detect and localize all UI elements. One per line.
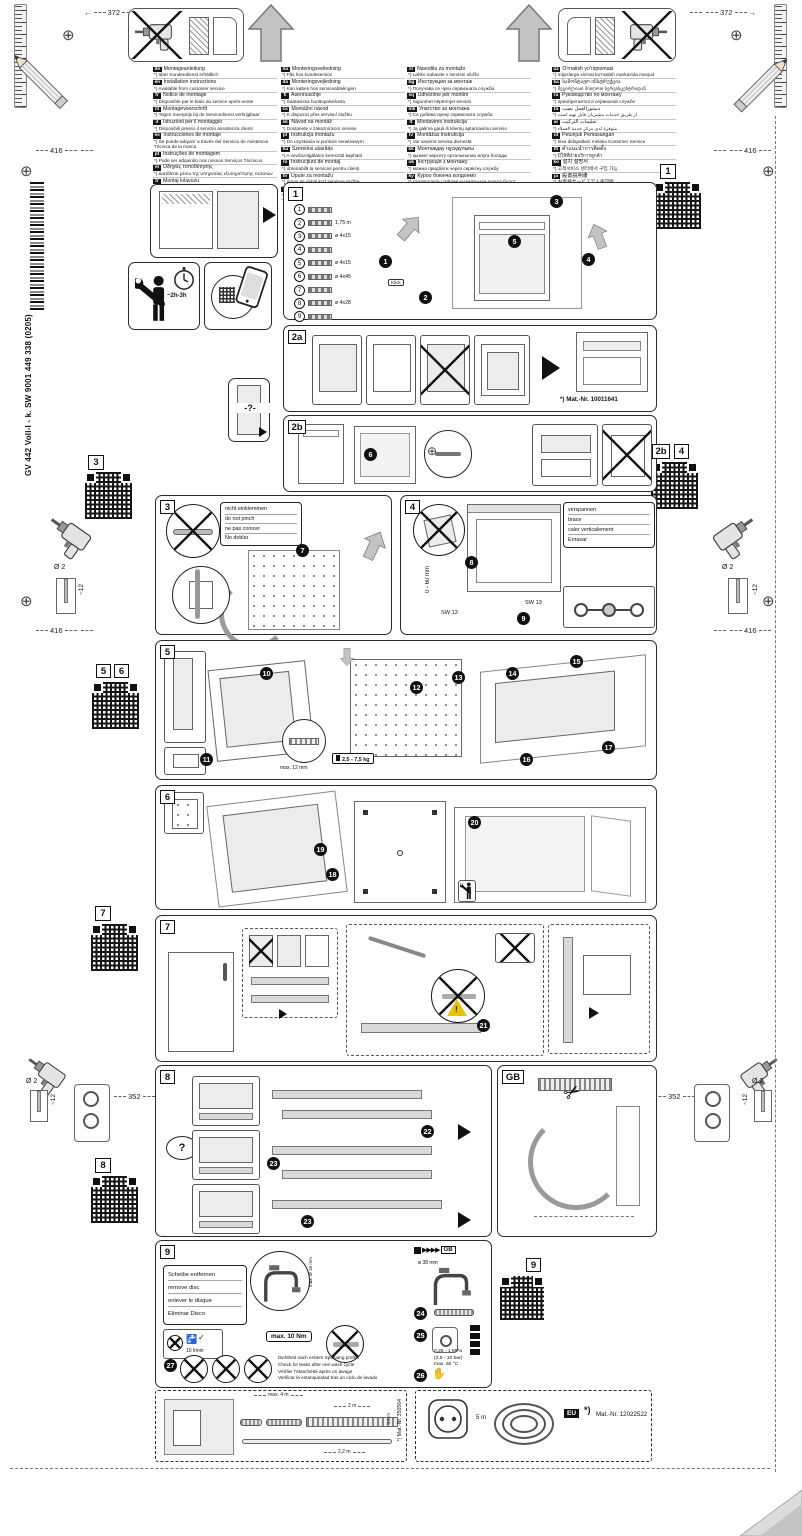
arrow-down-icon [336, 643, 358, 666]
language-row: daMonteringsvejledning*) Kan købes hos s… [281, 79, 405, 92]
language-row: fiAsennusohje*) Saatavissa huoltopalvelu… [281, 93, 405, 106]
torque-label: max. 10 Nm [266, 1331, 312, 1342]
part-size-label: ø 4x15 [335, 260, 351, 266]
screw-icon: ⊕ [20, 164, 33, 179]
supply-hose-sketch [242, 1439, 392, 1444]
language-code-tag: sl [407, 67, 415, 72]
hand-tighten-icon: ✋ [432, 1367, 446, 1380]
step-23-badge: 23 [267, 1157, 280, 1170]
step-19-badge: 19 [314, 843, 327, 856]
leak-check-line: Check for leaks after one wash cycle [278, 1362, 377, 1369]
parts-list-item: 5ø 4x15 [294, 257, 380, 270]
arrow-right-icon [259, 427, 267, 437]
warning-line: Enrasar [568, 536, 650, 544]
plinth-adjust-box: ! 21 [346, 924, 544, 1056]
parts-list-item: 4 [294, 243, 380, 256]
language-note: *) қызмет көрсету орталығынан алуға бола… [407, 153, 531, 158]
language-note: *) K dispozici přes servisní službu [281, 112, 405, 117]
warning-line: No doblar [225, 534, 297, 542]
language-title: Instrukcja montażu [291, 132, 335, 138]
panel-8-badge: 8 [160, 1070, 175, 1084]
language-code-tag: ka [552, 80, 560, 85]
aerator-size-label: max. Ø 18 mm [308, 1257, 313, 1287]
no-drill-panel-types-box-left [128, 8, 244, 62]
qr-code-step3 [85, 472, 132, 519]
pilot-hole-sketch [754, 1090, 772, 1122]
installation-sheet: ⊕ ←372 372→ ⊕ deMontageanleitung*) über … [0, 0, 802, 1536]
barcode [30, 182, 44, 310]
part-sketch [308, 260, 332, 266]
language-code-tag: sq [407, 93, 416, 98]
step-16-badge: 16 [520, 753, 533, 766]
hose-clamp-sketch [434, 1309, 474, 1316]
leak-check-line: Dichtheit nach erstem Spülgang prüfen [278, 1355, 377, 1362]
pilot-hole-sketch [56, 578, 76, 614]
language-row: thคำแนะนำการติดตั้ง*) มีให้ที่ฝ่ายบริการ… [552, 146, 676, 159]
part-number: 2 [294, 218, 305, 229]
step-14-badge: 14 [506, 667, 519, 680]
arrow-right-icon [542, 356, 560, 380]
panel-9-badge: 9 [160, 1245, 175, 1259]
language-title: Руководство по монтажу [562, 92, 622, 98]
door-measure-sketch [164, 651, 206, 743]
door-front-sketch [168, 952, 234, 1052]
hinge-bracket-sketch [694, 1084, 730, 1142]
language-row: faدستورالعمل نصب*) از طریق خدمات مشتریان… [552, 106, 676, 119]
wrench-size-label: SW 13 [441, 610, 458, 616]
dimension-line [534, 1216, 634, 1217]
dishwasher-sketch [474, 215, 550, 301]
cabinet-option-crossed-sketch [420, 335, 470, 405]
smartphone-icon [233, 264, 270, 314]
step-1-badge: 1 [379, 255, 392, 268]
language-title: Instrucţiuni de montaj [291, 159, 340, 165]
drill-diameter-label: Ø 2 [26, 1078, 37, 1085]
panel-4-badge: 4 [405, 500, 420, 514]
plinth-board-sketch [282, 1110, 432, 1119]
drill-diameter-label: Ø 2 [722, 564, 733, 571]
step-6-badge: 6 [364, 448, 377, 461]
step-10-badge: 10 [260, 667, 273, 680]
unknown-height-label: -?- [229, 403, 271, 413]
furniture-door-sketch [217, 191, 259, 249]
language-code-tag: lv [407, 133, 415, 138]
flow-rate-label: 10 l/min [186, 1348, 204, 1354]
cabinet-side-sketch [616, 1106, 640, 1206]
warning-line: caler verticalement [568, 526, 650, 535]
language-code-tag: fi [281, 93, 289, 98]
language-title: O'rnatish yo'riqnomasi [562, 66, 613, 72]
panel-2a-cabinet-types: 2a *) Mat.-Nr. 10011641 [283, 325, 657, 412]
arrow-right-icon [458, 1212, 471, 1228]
step-27-badge: 27 [164, 1359, 177, 1372]
language-note: *) mijozlarga xizmat ko'rsatish markazid… [552, 72, 676, 77]
language-title: Інструкція з монтажу [418, 159, 468, 165]
fixing-detail-sketch [532, 424, 598, 486]
screw-icon: ⊕ [762, 594, 775, 609]
panel-6-door-mounting: 6 19 18 20 [155, 785, 657, 910]
part-number: 6 [294, 271, 305, 282]
plinth-variants-box [242, 928, 338, 1018]
parts-list: 121,75 m3ø 4x1545ø 4x156ø 4x4578ø 4x289 [294, 203, 380, 324]
cabinet-plinth-sketch [192, 1076, 260, 1126]
page-ref-badge-5: 5 [96, 664, 111, 678]
language-row: mkУпатство за монтажа*) Се добива преку … [407, 106, 531, 119]
language-note: *) Se puede adquirir a través del Servic… [153, 139, 277, 149]
qr-code-step2b-4 [651, 462, 698, 509]
part-number: 9 [294, 311, 305, 322]
language-row: skNávod na montáž*) Dostanete v zákazníc… [281, 120, 405, 133]
language-row: enInstallation instructions*) Available … [153, 79, 277, 92]
arrow-up-icon [388, 209, 428, 250]
drain-diameter-label: ø 38 mm [418, 1260, 438, 1266]
language-note: *) Do uzyskania w punkcie serwisowym [281, 139, 405, 144]
panel-gb-badge: GB [502, 1070, 524, 1084]
panel-gb-seal-trim: GB ✂ [497, 1065, 657, 1237]
power-cord-coil-sketch [510, 1415, 538, 1433]
language-code-tag: id [552, 133, 560, 138]
adjustment-range-label: 0 - 60 mm [425, 566, 431, 593]
language-row: ltMontavimo instrukcija*) Ją galima gaut… [407, 120, 531, 133]
klick-label: Klick [388, 279, 404, 286]
language-row: roInstrucţiuni de montaj*) obtenabilă la… [281, 160, 405, 173]
qr-code-step9 [500, 1276, 544, 1320]
page-ref-badge-7: 7 [95, 906, 111, 921]
language-row: huSzerelési utasítás*) A vevőszolgálaton… [281, 146, 405, 159]
panel-2a-badge: 2a [288, 330, 306, 344]
installation-time-box: ~2h-3h [128, 262, 200, 330]
language-title: Navodila za montažo [417, 66, 465, 72]
do-not-tilt-icon [413, 504, 465, 556]
panel-6-badge: 6 [160, 790, 175, 804]
pressure-line: 0,25 - 1 MPa [434, 1349, 462, 1356]
remove-disc-line: Scheibe entfernen [168, 1271, 242, 1281]
language-title: Monteringsvejledning [292, 79, 341, 85]
warning-line: nicht einklemmen [225, 505, 297, 514]
furniture-door-sketch [159, 191, 213, 249]
panel-profile-sketch [595, 17, 615, 55]
remove-disc-text-box: Scheibe entfernenremove discenlever le d… [163, 1265, 247, 1325]
language-title: Упатство за монтажа [419, 106, 470, 112]
drill-depth-label: ~12 [752, 584, 759, 595]
parts-list-item: 8ø 4x28 [294, 297, 380, 310]
magnifier-circle: ⊕ [424, 430, 472, 478]
language-row: esInstrucciones de montaje*) Se puede ad… [153, 133, 277, 152]
drill-depth-label: ~12 [742, 1094, 749, 1105]
language-title: تعليمات التركيب [562, 119, 597, 125]
step-13-badge: 12 [410, 681, 423, 694]
language-note: *) Ją galima gauti iš klientų aptarnavim… [407, 126, 531, 131]
drain-hose-sketch [306, 1417, 398, 1427]
screw-icon: ⊕ [730, 28, 743, 43]
screw-icon: ⊕ [762, 164, 775, 179]
step-12-badge: 13 [452, 671, 465, 684]
cabinet-option-sketch [312, 335, 362, 405]
language-note: *) Tegen meerprijs bij de Servicedienst … [153, 112, 277, 117]
language-code-tag: ro [281, 160, 289, 165]
part-sketch [308, 207, 332, 213]
worktop-iso-sketch [480, 654, 646, 763]
door-weight-label: 2,5 - 7,5 kg [332, 753, 374, 764]
language-list-col3: slNavodila za montažo*) Lahko nabavite v… [407, 66, 531, 200]
language-title: Installation instructions [164, 79, 216, 85]
language-code-tag: mk [407, 107, 417, 112]
step-21-badge: 21 [477, 1019, 490, 1032]
warning-text-box: verspannenbracecaler verticalementEnrasa… [563, 502, 655, 548]
language-title: Montagevoorschrift [163, 106, 207, 112]
page-curl [740, 1490, 802, 1536]
drill-icon [700, 505, 768, 572]
language-title: Οδηγίες τοποθέτησης [163, 164, 213, 170]
panel-9-water-connection: 9 Scheibe entfernenremove discenlever le… [155, 1240, 492, 1388]
arrow-up-icon [247, 4, 295, 67]
language-code-tag: hr [281, 174, 289, 179]
language-row: arتعليمات التركيب*) متوفرة لدى مركز خدمة… [552, 120, 676, 133]
language-code-tag: fr [153, 93, 161, 98]
template-grid-sketch [350, 659, 462, 757]
language-row: slNavodila za montažo*) Lahko nabavite v… [407, 66, 531, 79]
language-note: *) از طریق خدمات مشتریان قابل تهیه است [552, 112, 676, 117]
dim-416-left-bottom: 416 [34, 626, 95, 635]
warning-line: ne pas coincer [225, 525, 297, 534]
language-code-tag: ko [552, 160, 561, 165]
language-row: ptInstruções de montagem*) Pode ser adqu… [153, 152, 277, 165]
language-code-tag: uk [407, 160, 416, 165]
language-code-tag: no [281, 67, 290, 72]
language-title: 설치 설명서 [563, 159, 588, 165]
remove-disc-line: remove disc [168, 1284, 242, 1294]
language-row: idPetunjuk Pemasangan*) bisa didapatkan … [552, 133, 676, 146]
language-code-tag: bg [407, 80, 416, 85]
arrow-up-icon [583, 220, 614, 257]
page-ref-badge-8: 8 [95, 1158, 111, 1173]
dim-372-right: 372→ [688, 8, 756, 17]
clock-icon [173, 267, 195, 296]
appliance-top-sketch [576, 332, 648, 392]
part-sketch [308, 300, 332, 306]
plinth-board-sketch [272, 1200, 442, 1209]
panel-3-hose-routing: 3 nicht einklemmendo not pinchne pas coi… [155, 495, 392, 635]
language-note: *) มีให้ที่ฝ่ายบริการลูกค้า [552, 153, 676, 158]
language-note: *) Fås hos kundeservice [281, 72, 405, 77]
step-26-badge: 26 [414, 1369, 427, 1382]
part-number: 8 [294, 298, 305, 309]
step-17-badge: 17 [602, 741, 615, 754]
drill-depth-label: ~12 [78, 584, 85, 595]
cross-out-mark [131, 11, 183, 59]
language-title: Návod na montáž [291, 119, 332, 125]
drain-faucet-sketch [428, 1267, 474, 1310]
language-title: คำแนะนำการติดตั้ง [562, 146, 606, 152]
part-number: 7 [294, 285, 305, 296]
language-code-tag: en [153, 80, 162, 85]
language-row: uzO'rnatish yo'riqnomasi*) mijozlarga xi… [552, 66, 676, 79]
step-7-badge: 7 [296, 544, 309, 557]
country-tag-stack [470, 1325, 480, 1355]
page-ref-badge-9: 9 [526, 1258, 541, 1272]
plinth-board-sketch [272, 1146, 432, 1155]
language-title: 設置説明書 [562, 173, 588, 179]
appliance-open-door-sketch [454, 807, 646, 903]
language-row: elΟδηγίες τοποθέτησης*) Διατίθεται μέσω … [153, 165, 277, 178]
part-number: 3 [294, 231, 305, 242]
language-title: Notice de montage [163, 92, 207, 98]
step-11-badge: 11 [200, 753, 213, 766]
language-code-tag: nl [153, 107, 161, 112]
language-note: *) bisa didapatkan melalui Customer Serv… [552, 139, 676, 144]
part-sketch [308, 314, 332, 320]
language-code-tag: fa [552, 107, 560, 112]
step-2-badge: 2 [419, 291, 432, 304]
page-ref-badge-6: 6 [114, 664, 129, 678]
panel-4-leveling: 4 verspannenbracecaler verticalementEnra… [400, 495, 657, 635]
panel-profile-sketch [213, 17, 237, 55]
drill-depth-label: ~12 [50, 1094, 57, 1105]
panel-7-plinth: 7 ! 21 [155, 915, 657, 1062]
language-title: دستورالعمل نصب [562, 106, 600, 112]
arrows-icon: ▶▶▶▶ [422, 1246, 440, 1254]
language-title: Instrucciones de montaje [163, 132, 221, 138]
language-code-tag: da [281, 80, 290, 85]
page-ref-badge-4: 4 [674, 444, 689, 459]
language-row: itIstruzioni per il montaggio*) Disponib… [153, 120, 277, 133]
parts-list-item: 3ø 4x15 [294, 230, 380, 243]
panel-8-plinth-fixing: 8 ? 22 23 23 [155, 1065, 492, 1237]
two-person-lift-pictogram [458, 880, 476, 902]
parts-list-item: 9 [294, 310, 380, 323]
language-note: *) A vevőszolgálaton keresztül kapható [281, 153, 405, 158]
language-title: Montavimo instrukcija [417, 119, 467, 125]
warning-line: do not pinch [225, 515, 297, 524]
language-row: sqUdhëzime për montim*) Sigurohet nëpërm… [407, 93, 531, 106]
step-23-badge: 23 [301, 1215, 314, 1228]
cross-out-mark [621, 11, 673, 59]
power-socket-icon [428, 1399, 468, 1444]
part-number: 5 [294, 258, 305, 269]
language-code-tag: de [153, 67, 162, 72]
step-15-badge: 15 [570, 655, 583, 668]
plinth-board-sketch [272, 1090, 422, 1099]
cabinet-plinth-sketch [192, 1130, 260, 1180]
language-title: Udhëzime për montim [418, 92, 469, 98]
remove-disc-line: enlever le disque [168, 1297, 242, 1307]
step-25-badge: 25 [414, 1329, 427, 1342]
cabinet-with-appliance-sketch [474, 335, 530, 405]
language-list-col4: uzO'rnatish yo'riqnomasi*) mijozlarga xi… [552, 66, 676, 200]
panel-1-badge: 1 [288, 187, 303, 201]
language-code-tag: th [552, 147, 560, 152]
part-sketch [308, 233, 332, 239]
language-list-col2: noMonteringsveiledning*) Fås hos kundese… [281, 66, 405, 200]
step-24-badge: 24 [414, 1307, 427, 1320]
language-note: *) 고객서비스 센터에서 구입 가능 [552, 166, 676, 171]
step-18-badge: 18 [326, 868, 339, 881]
step-8-badge: 8 [465, 556, 478, 569]
mat-nr-extension-label: *) Mat.-Nr. 350564 [397, 1399, 403, 1441]
language-note: *) Lahko nabavite v servisni službi [407, 72, 531, 77]
language-code-tag: pl [281, 133, 289, 138]
language-row: lvMontāžas instrukcija*) Var saņemt serv… [407, 133, 531, 146]
drill-diameter-label: Ø 2 [752, 1078, 763, 1085]
panel-2b-badge: 2b [288, 420, 306, 434]
part-sketch [308, 220, 332, 226]
language-row: bgИнструкция за монтаж*) Получава се чре… [407, 79, 531, 92]
part-number: 1 [294, 204, 305, 215]
panel-profile-sketch [567, 17, 591, 55]
water-pressure-text: 0,25 - 1 MPa(2,5 - 10 bar)max. 60 °C [434, 1349, 462, 1369]
power-cord-box: 5 m EU *) Mat.-Nr. 12022522 [415, 1390, 652, 1462]
language-code-tag: kk [407, 147, 415, 152]
language-code-tag: ar [552, 120, 560, 125]
language-code-tag: hu [281, 147, 290, 152]
installation-time-label: ~2h-3h [167, 293, 187, 299]
qr-code-step5-6 [92, 682, 139, 729]
hose-extension-box: max. 4 m 2 m 2,2 m 0,5 m *) Mat.-Nr. 350… [155, 1390, 407, 1462]
step-20-badge: 20 [468, 816, 481, 829]
language-row: frNotice de montage*) Disponible par le … [153, 93, 277, 106]
part-sketch [308, 287, 332, 293]
step-5-badge: 5 [508, 235, 521, 248]
part-size-label: ø 4x45 [335, 274, 351, 280]
wrong-fixing-crossed-sketch [602, 424, 652, 486]
language-note: *) შეგიძლიათ მიიღოთ სერვისცენტრიდან [552, 86, 676, 91]
language-row: deMontageanleitung*) über Kundendienst e… [153, 66, 277, 79]
qr-code-step8 [91, 1176, 138, 1223]
cord-length-label: 5 m [476, 1415, 486, 1421]
language-note: *) Available from customer service [153, 86, 277, 91]
page-ref-badge-1: 1 [660, 164, 676, 179]
hose-curve-sketch [528, 1114, 624, 1210]
mat-nr-label: *) Mat.-Nr. 10011641 [560, 396, 618, 403]
step-9-badge: 9 [517, 612, 530, 625]
language-note: *) Се добива преку сервисната служба [407, 112, 531, 117]
panel-7-badge: 7 [160, 920, 175, 934]
installer-person-icon [135, 273, 175, 330]
hose-coupler-sketch [266, 1419, 302, 1426]
faucet-check-icon: 🚰 [186, 1334, 197, 1345]
dim-max-4m: max. 4 m [252, 1392, 305, 1398]
check-icon: ✓ [198, 1333, 205, 1342]
panel-5-door-prep: 5 11 10 12 13 max. 12 mm 2,5 - 7,5 kg 14… [155, 640, 657, 780]
door-panel-box [150, 184, 278, 258]
leak-check-line: Verificar la estanqueidad tras un ciclo … [278, 1375, 377, 1382]
pilot-hole-sketch [30, 1090, 48, 1122]
language-code-tag: cs [281, 107, 289, 112]
language-row: kkМонтаждау нұсқаулығы*) қызмет көрсету … [407, 146, 531, 159]
language-note: *) Pode ser adquirido nos nossos Serviço… [153, 158, 277, 163]
language-title: Petunjuk Pemasangan [562, 132, 614, 138]
language-title: სამონტაჟო ინსტრუქცია [562, 79, 620, 85]
plinth-board-sketch [282, 1170, 432, 1179]
language-title: Куроо боюнча колдонмо [417, 173, 476, 179]
language-code-tag: it [153, 120, 161, 125]
language-code-tag: lt [407, 120, 415, 125]
language-title: Monteringsveiledning [292, 66, 341, 72]
qr-code-step1 [654, 182, 701, 229]
dim-416-right-top: 416 [712, 146, 773, 155]
dim-416-left-top: 416 [34, 146, 95, 155]
aerator-magnifier-circle [250, 1251, 310, 1311]
parts-list-item: 7 [294, 283, 380, 296]
magnifier-circle [172, 566, 230, 624]
language-code-tag: es [153, 133, 161, 138]
qr-code-step7 [91, 924, 138, 971]
dim-352-right: 352 [652, 1092, 697, 1101]
mat-nr-cord-label: Mat.-Nr. 12022522 [596, 1411, 647, 1418]
square-icon [414, 1247, 421, 1254]
asterisk-note: *) [584, 1405, 591, 1415]
warning-text-box: nicht einklemmendo not pinchne pas coinc… [220, 502, 302, 546]
